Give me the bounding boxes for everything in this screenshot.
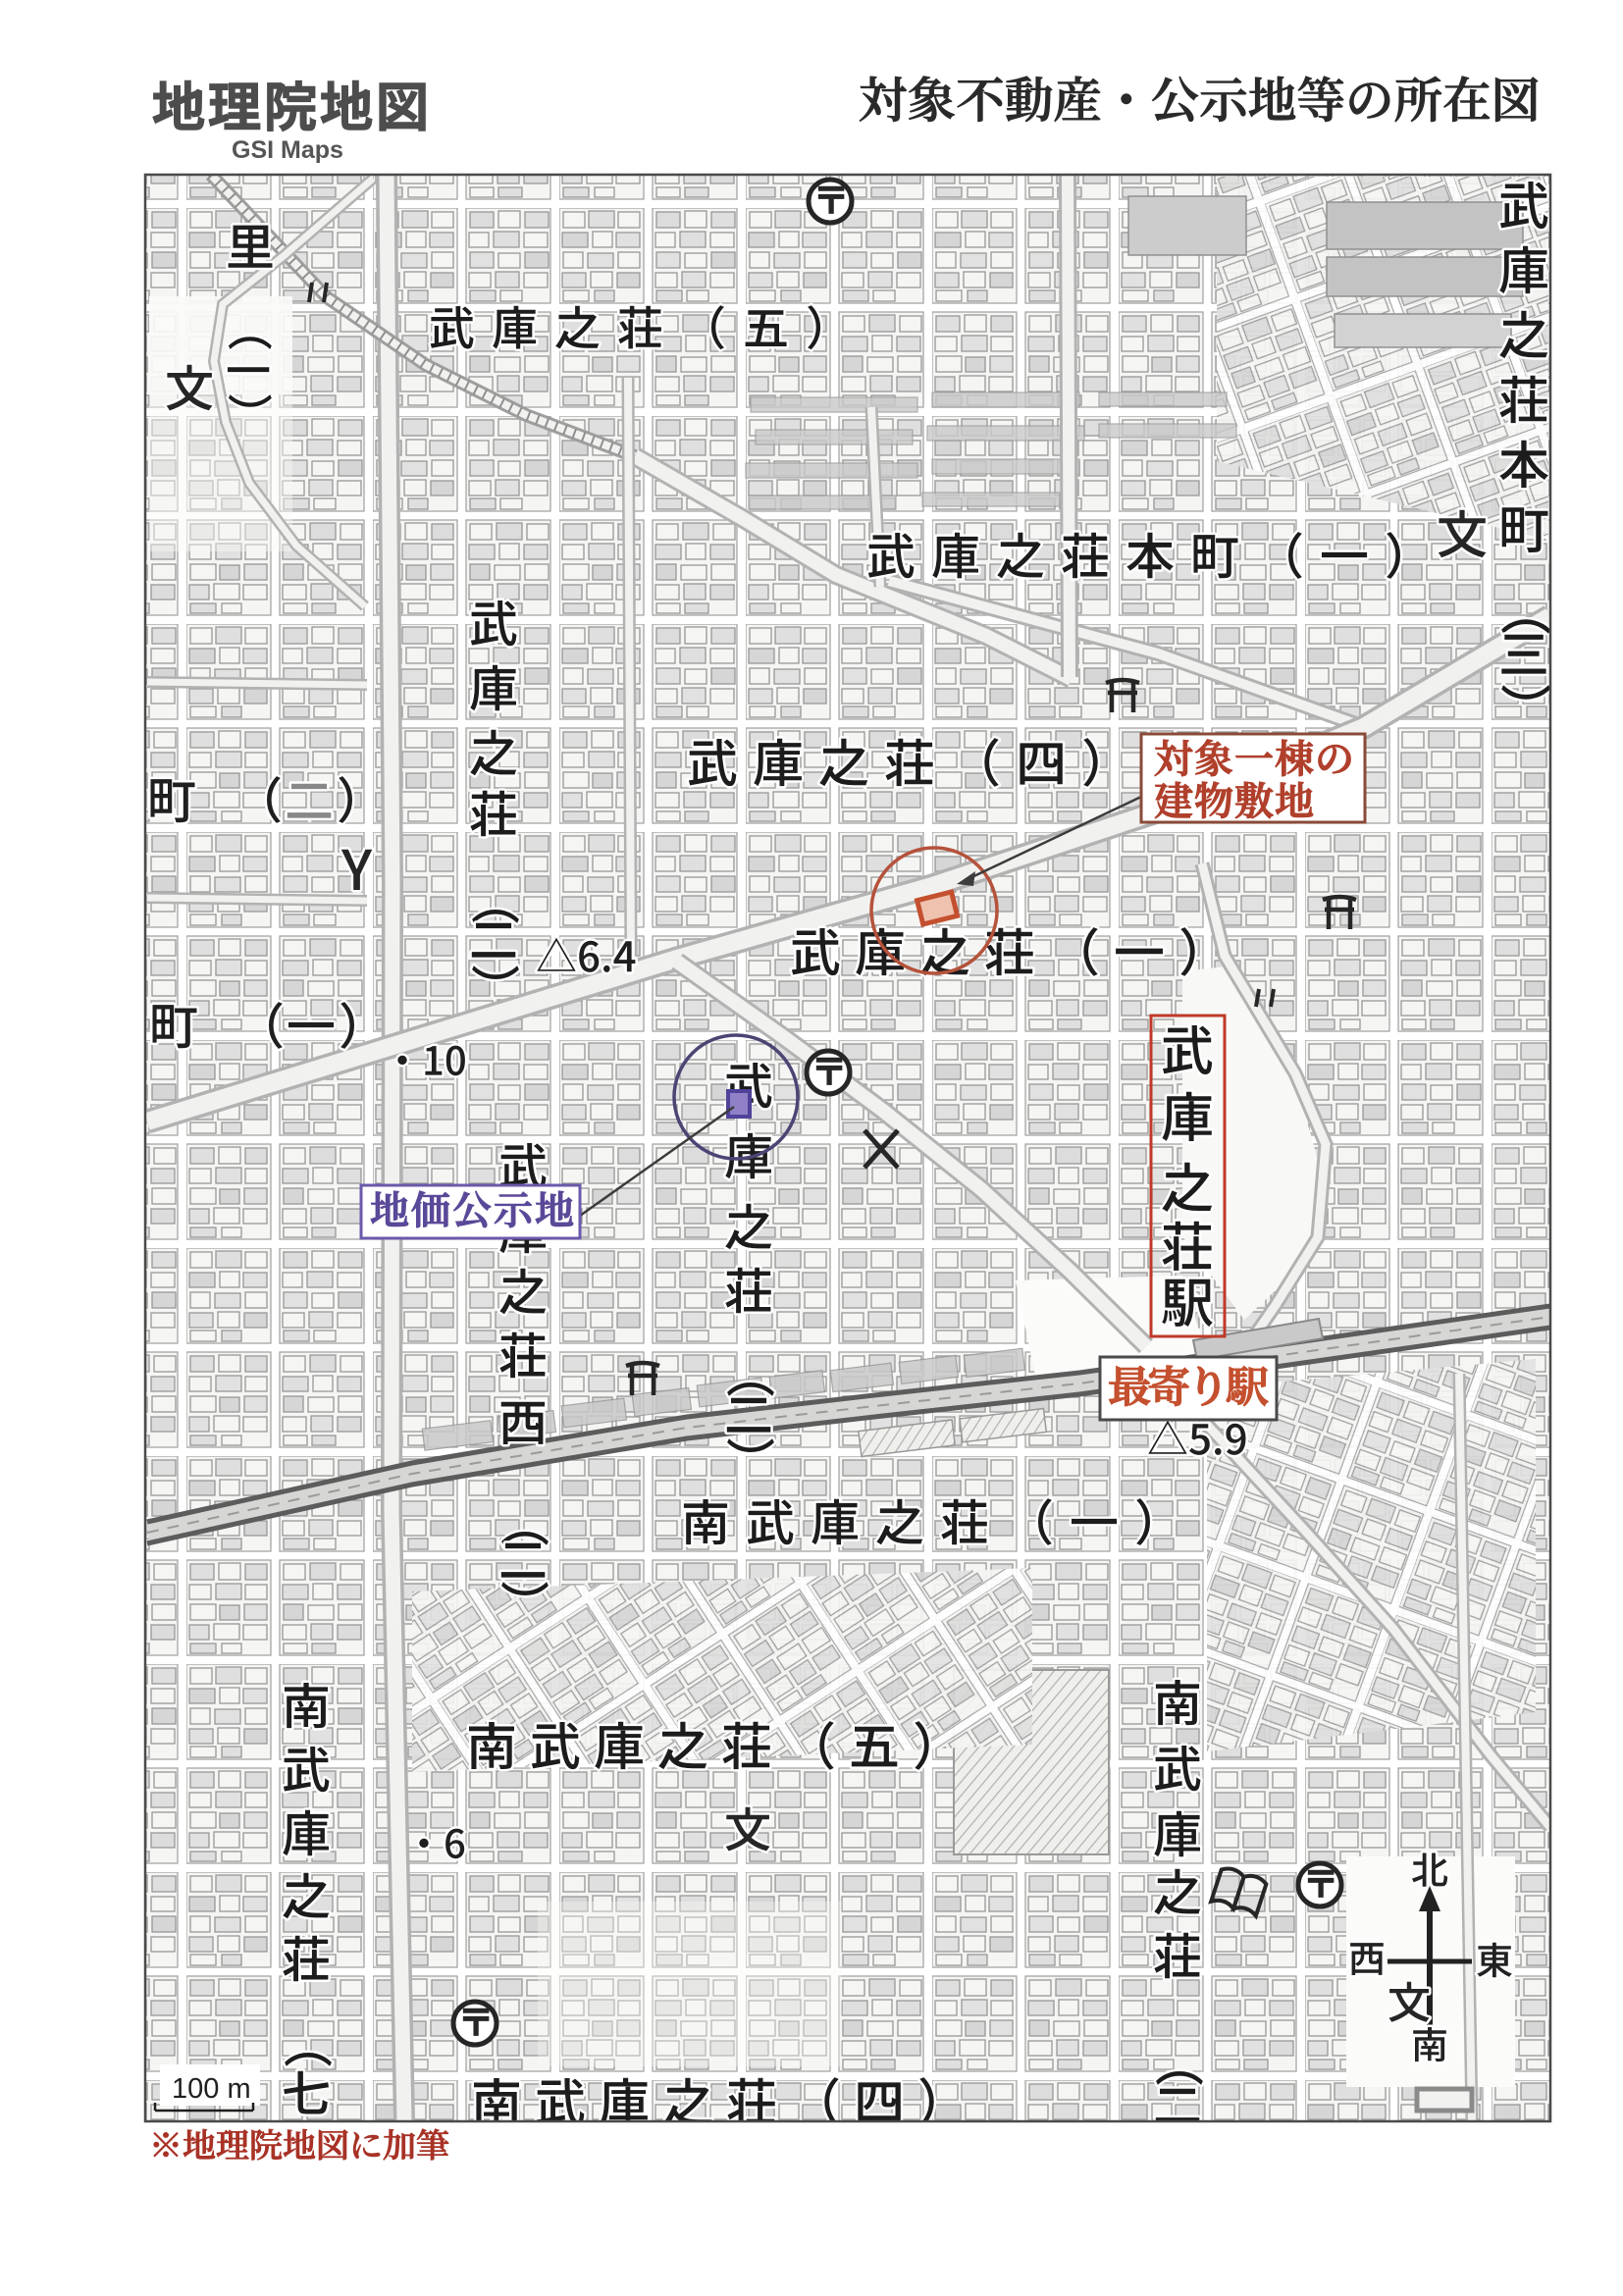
svg-text:GSI Maps: GSI Maps [232,136,343,164]
svg-text:100 m: 100 m [172,2073,251,2105]
